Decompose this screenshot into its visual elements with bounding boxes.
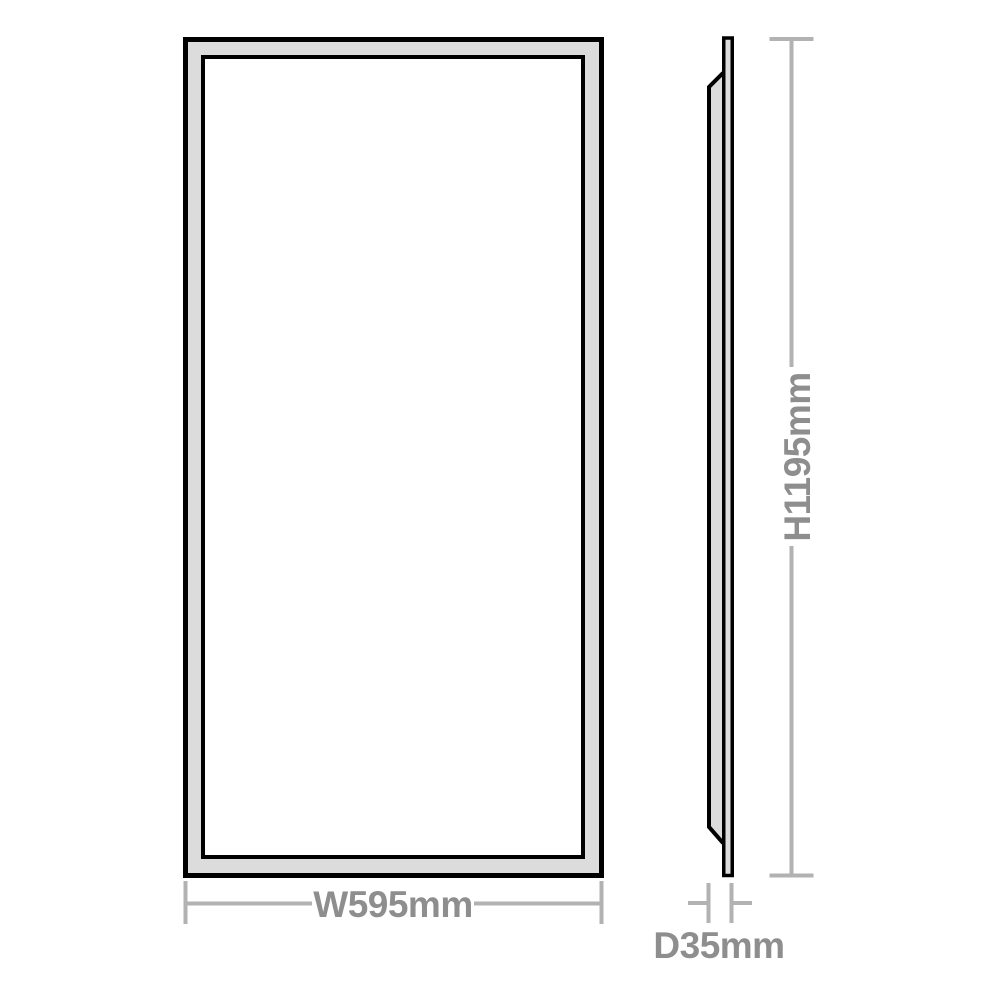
front-panel-diffuser xyxy=(205,59,581,855)
depth-dim-label: D35mm xyxy=(653,925,784,966)
side-view xyxy=(709,38,732,876)
front-view xyxy=(183,37,604,878)
depth-dimension xyxy=(688,883,752,923)
height-dim-label: H1195mm xyxy=(777,372,818,541)
width-dim-label: W595mm xyxy=(313,884,472,925)
dimension-diagram: W595mm H1195mm D35mm xyxy=(0,0,1000,1000)
diagram-drawing: W595mm H1195mm D35mm xyxy=(0,0,1000,1000)
side-profile-flange xyxy=(724,38,733,876)
